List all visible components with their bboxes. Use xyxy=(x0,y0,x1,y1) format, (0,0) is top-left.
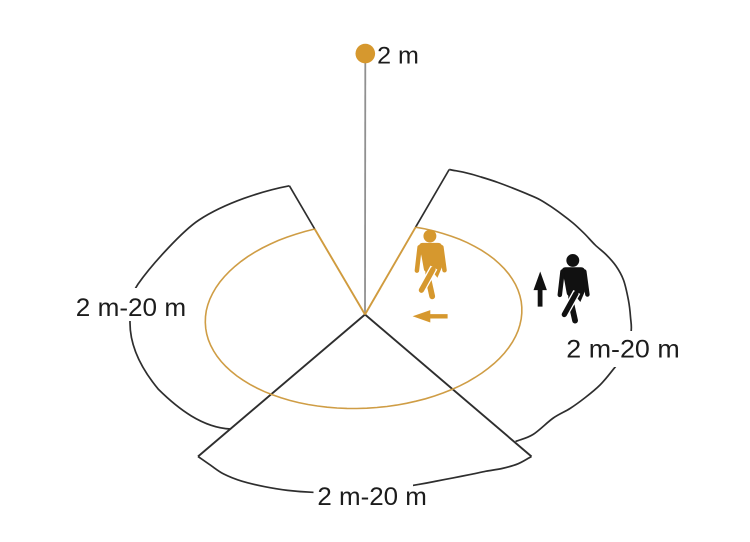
svg-text:2 m-20 m: 2 m-20 m xyxy=(566,335,679,363)
svg-text:2 m: 2 m xyxy=(377,42,419,69)
svg-text:2 m-20 m: 2 m-20 m xyxy=(317,483,427,511)
svg-text:2 m-20 m: 2 m-20 m xyxy=(76,294,186,322)
